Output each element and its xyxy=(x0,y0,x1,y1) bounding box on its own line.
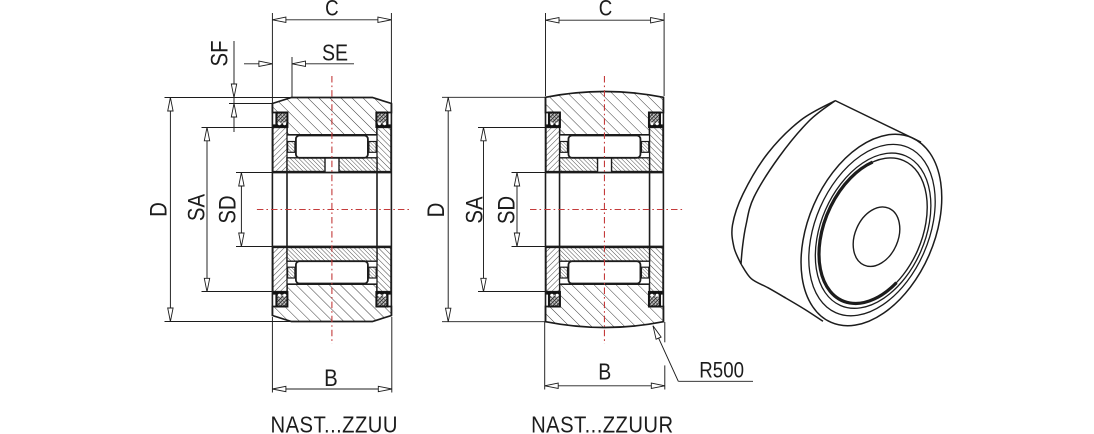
svg-text:D: D xyxy=(145,202,172,217)
svg-text:B: B xyxy=(324,364,338,391)
svg-text:SE: SE xyxy=(322,40,348,66)
svg-text:R500: R500 xyxy=(699,359,744,383)
svg-text:SD: SD xyxy=(493,196,520,224)
svg-text:C: C xyxy=(325,0,339,21)
svg-text:D: D xyxy=(422,203,449,218)
svg-text:SA: SA xyxy=(183,194,210,221)
svg-text:NAST...ZZUU: NAST...ZZUU xyxy=(271,411,398,434)
svg-text:SF: SF xyxy=(206,40,233,66)
svg-text:SA: SA xyxy=(461,196,488,223)
svg-text:SD: SD xyxy=(214,195,241,223)
svg-text:C: C xyxy=(599,0,613,21)
svg-text:B: B xyxy=(598,359,611,385)
svg-text:NAST...ZZUUR: NAST...ZZUUR xyxy=(531,411,673,434)
